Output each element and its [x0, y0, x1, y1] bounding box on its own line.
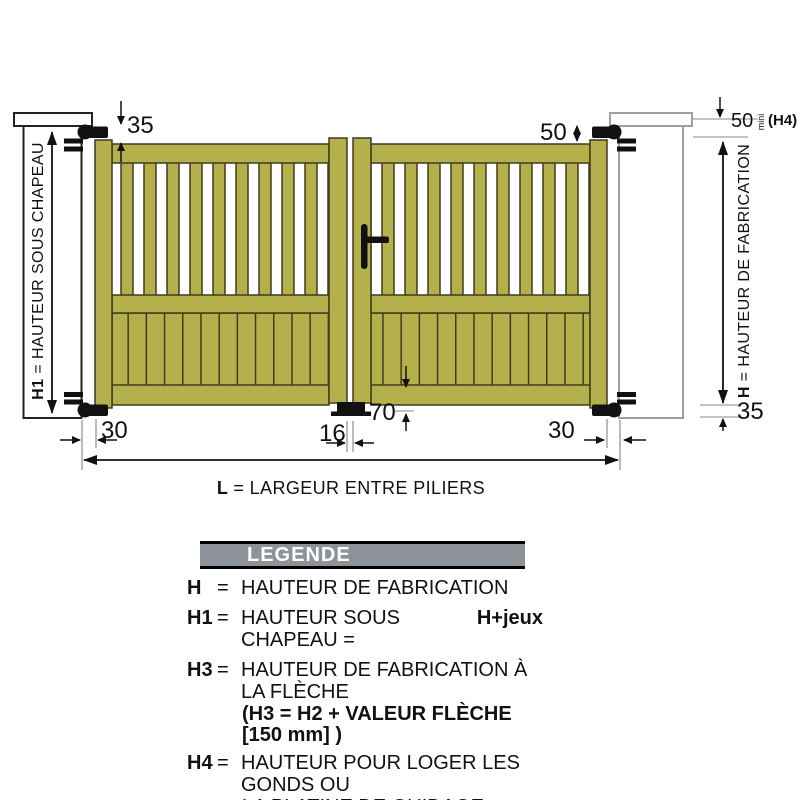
legend-entry-h3: H3 = HAUTEUR DE FABRICATION À LA FLÈCHE [185, 659, 543, 703]
legend-term: H3 [187, 659, 217, 703]
dim-35-top-label: 35 [127, 112, 154, 140]
center-stile [329, 138, 347, 403]
legend-text-bold: H+jeux [477, 607, 543, 651]
legend-entry-h: H = HAUTEUR DE FABRICATION [185, 577, 543, 599]
legend-text: HAUTEUR SOUS CHAPEAU = [241, 607, 471, 651]
pillar-right-cap [610, 113, 692, 126]
baluster-section [371, 163, 590, 295]
h1-text: = HAUTEUR SOUS CHAPEAU [30, 142, 47, 374]
l-text: = LARGEUR ENTRE PILIERS [233, 478, 485, 498]
l-term: L [217, 478, 228, 498]
h-text: = HAUTEUR DE FABRICATION [736, 144, 753, 381]
extension-lines [82, 419, 620, 470]
l-width-label: L= LARGEUR ENTRE PILIERS [151, 478, 551, 499]
pillar-right-body [619, 126, 683, 418]
middle-rail [112, 295, 329, 313]
dim-h4-mini-label: mini [756, 113, 766, 131]
gate-dimension-diagram: 35 50 50 mini (H4) 35 70 30 16 30 H1= HA… [0, 0, 800, 800]
h-term: H [736, 386, 753, 398]
baluster-section [112, 163, 329, 295]
gate-leaf-left [95, 138, 347, 408]
bottom-rail [371, 385, 590, 405]
dim-h4-ref-label: (H4) [768, 112, 797, 129]
ground-stop [331, 402, 371, 416]
dim-16-label: 16 [319, 420, 346, 448]
middle-rail [371, 295, 590, 313]
pillar-left-cap [14, 113, 92, 126]
legend-title: LEGENDE [200, 541, 525, 569]
legend-text: HAUTEUR POUR LOGER LES GONDS OU [241, 752, 543, 796]
legend-entry-h3-formula: (H3 = H2 + VALEUR FLÈCHE [150 mm] ) [185, 704, 543, 746]
legend-panel: LEGENDE H = HAUTEUR DE FABRICATION H1 = … [185, 541, 543, 800]
legend-text: HAUTEUR DE FABRICATION [241, 577, 508, 599]
equals-sign: = [217, 607, 241, 651]
gate-leaf-right [353, 138, 607, 408]
dim-30-left-label: 30 [101, 417, 128, 445]
board-panel-lines [112, 313, 329, 386]
pillar-left [14, 113, 92, 418]
h1-height-label: H1= HAUTEUR SOUS CHAPEAU [30, 121, 48, 421]
legend-term: H1 [187, 607, 217, 651]
legend-term: H4 [187, 752, 217, 796]
legend-text: HAUTEUR DE FABRICATION À LA FLÈCHE [241, 659, 543, 703]
dim-50-top-label: 50 [540, 119, 567, 147]
bottom-rail [112, 385, 329, 405]
legend-entry-h4: H4 = HAUTEUR POUR LOGER LES GONDS OU [185, 752, 543, 796]
legend-entry-h1: H1 = HAUTEUR SOUS CHAPEAU = H+jeux [185, 607, 543, 651]
top-rail [112, 144, 329, 163]
board-panel-lines [371, 313, 590, 386]
dim-70-label: 70 [369, 399, 396, 427]
equals-sign: = [217, 659, 241, 703]
h1-term: H1 [30, 379, 47, 400]
h-height-label: H= HAUTEUR DE FABRICATION [736, 121, 754, 421]
hinge-stile [95, 140, 112, 408]
equals-sign: = [217, 577, 241, 599]
dim-30-right-label: 30 [548, 417, 575, 445]
hinge-stile [590, 140, 607, 408]
center-stile [353, 138, 371, 403]
equals-sign: = [217, 752, 241, 796]
legend-term: H [187, 577, 217, 599]
pillar-right [610, 113, 692, 418]
